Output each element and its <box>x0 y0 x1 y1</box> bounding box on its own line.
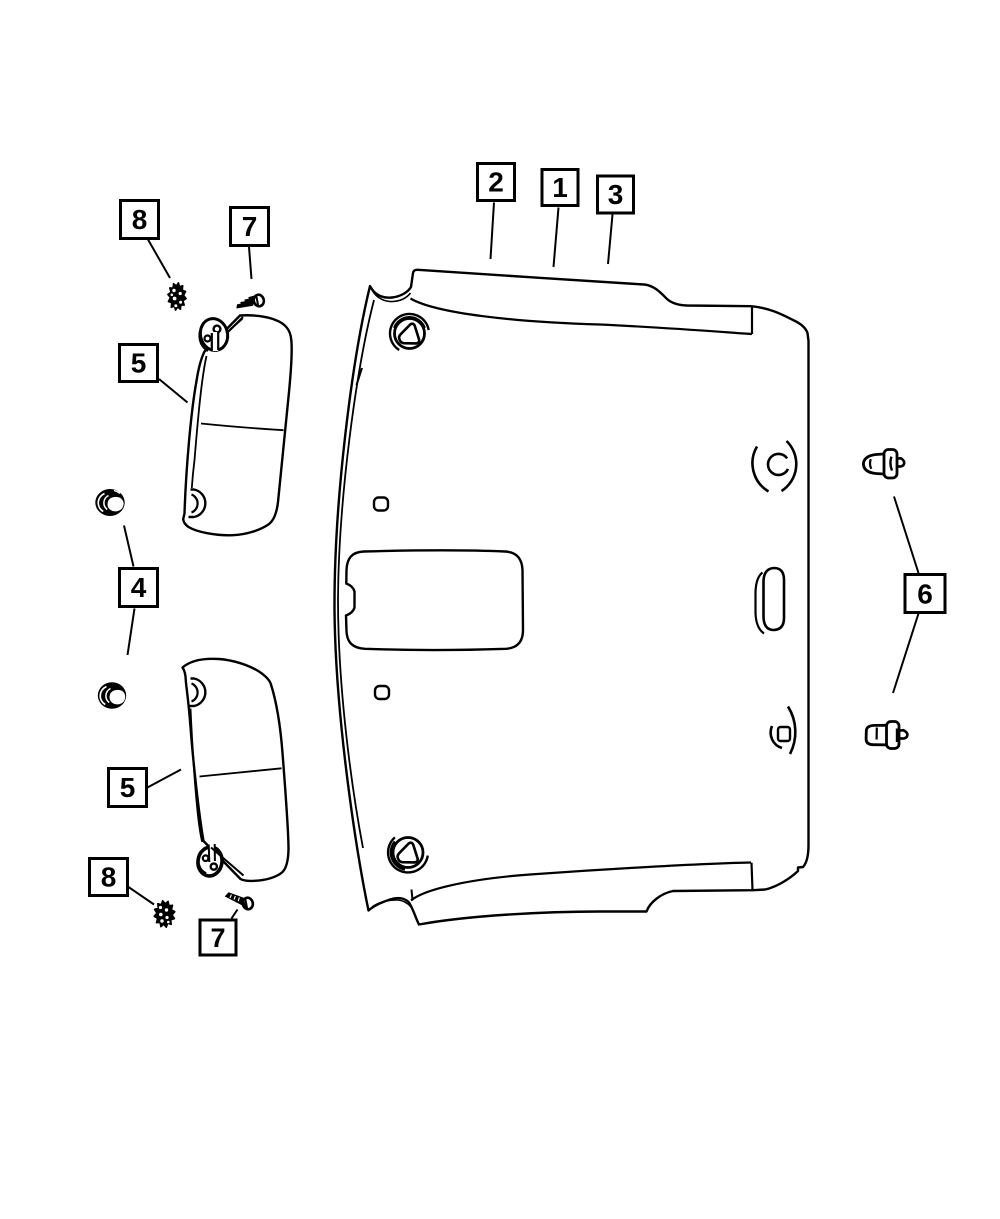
svg-text:2: 2 <box>488 167 504 198</box>
svg-text:8: 8 <box>101 862 117 893</box>
svg-text:7: 7 <box>242 211 258 242</box>
svg-text:4: 4 <box>131 572 147 603</box>
svg-text:5: 5 <box>131 348 147 379</box>
svg-text:5: 5 <box>120 772 136 803</box>
svg-text:6: 6 <box>917 579 933 610</box>
svg-text:8: 8 <box>132 204 148 235</box>
svg-text:3: 3 <box>608 179 624 210</box>
svg-text:7: 7 <box>210 923 225 953</box>
svg-text:1: 1 <box>552 172 568 203</box>
